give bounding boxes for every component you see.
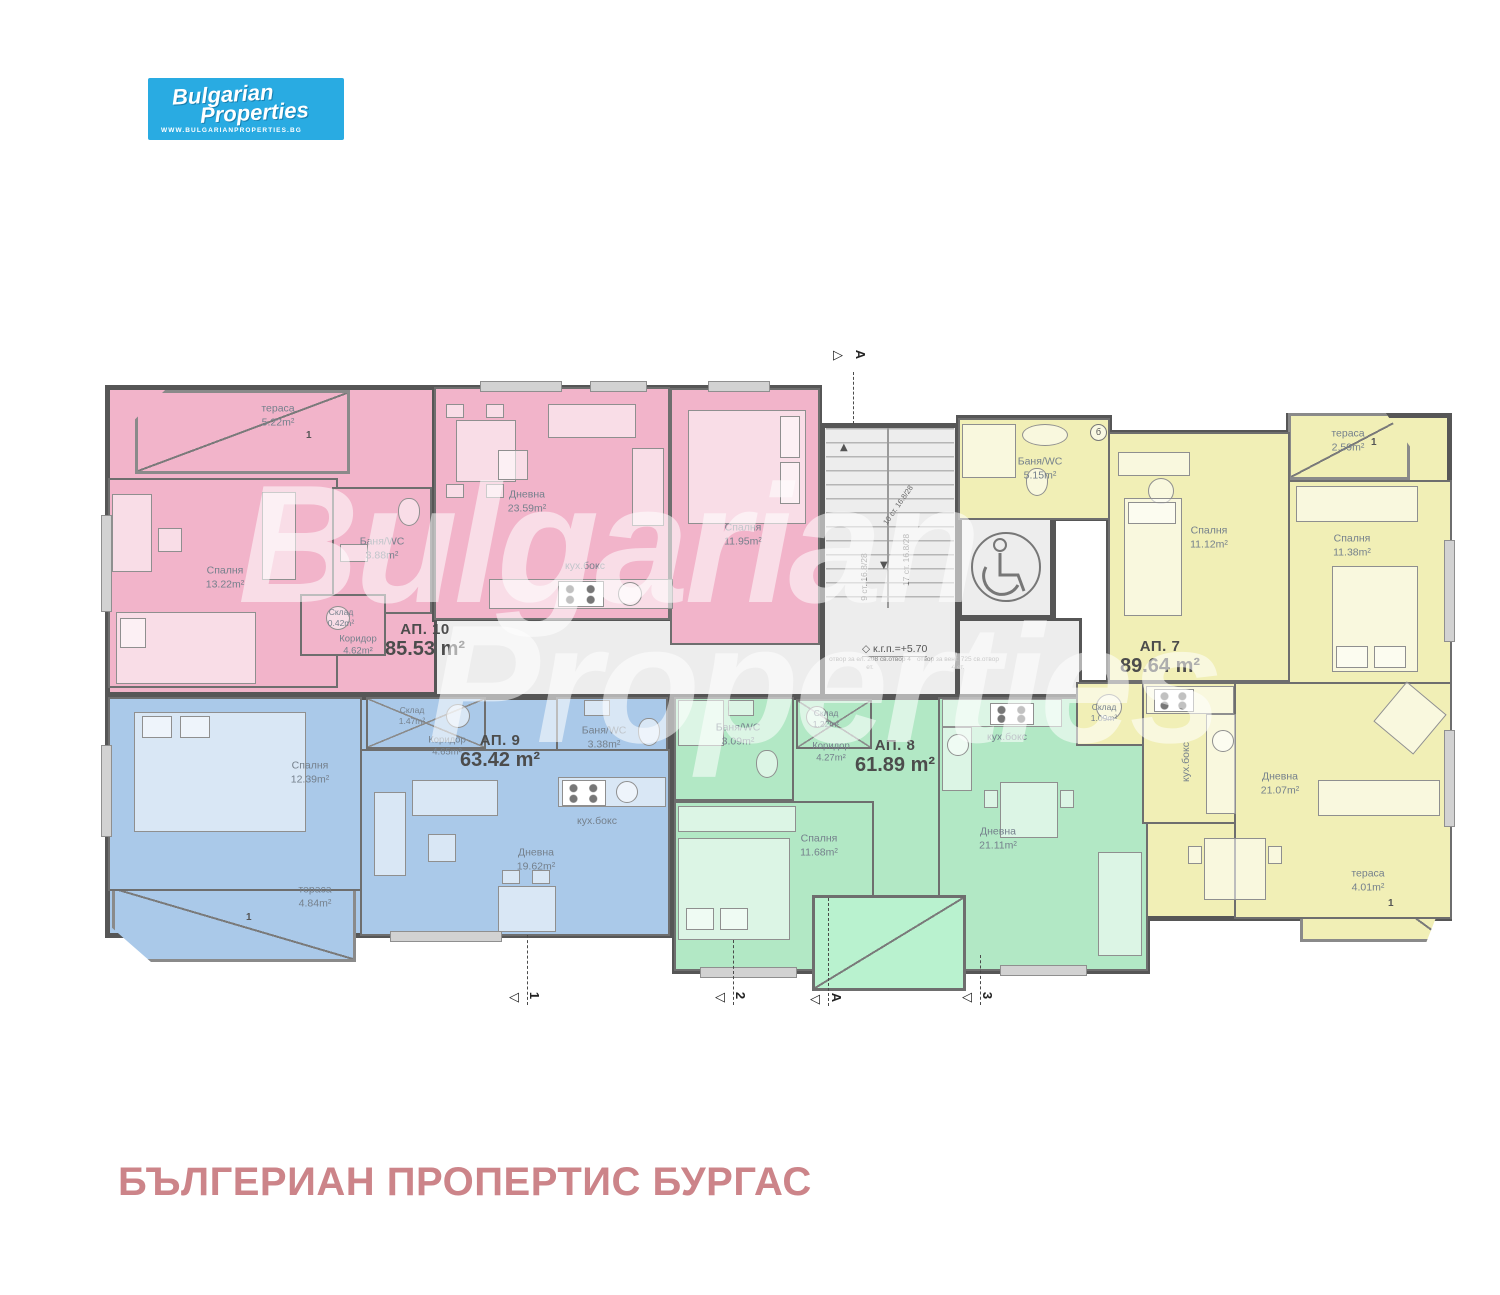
section-arrow-icon: ◁ (509, 990, 519, 1005)
window (590, 381, 647, 392)
section-line (853, 372, 854, 424)
toilet-icon (398, 498, 420, 526)
room-label-storage: Склад1.47m² (399, 705, 425, 727)
stove-icon (1154, 689, 1194, 712)
room-label-kitchen: кух.бокс (565, 560, 605, 574)
stove-icon (562, 780, 606, 806)
building-entrance-vestibule (812, 895, 966, 991)
room-label-bedroom: Спалня11.95m² (724, 521, 762, 548)
room-label-bathroom: Баня/WC3.38m² (582, 724, 627, 751)
elevator-wheelchair-icon (966, 523, 1046, 611)
wardrobe-icon (1296, 486, 1418, 522)
shaft-note: отвор за ел. 208 св.отвор 4 ет. (828, 656, 912, 672)
chair-icon (446, 484, 464, 498)
pillow-icon (780, 462, 800, 504)
stove-icon (990, 703, 1034, 725)
bath-sink-icon (728, 700, 754, 716)
kitchen-sink-icon (947, 734, 969, 756)
window (480, 381, 562, 392)
room-label-terrace: тераса2.59m² (1331, 427, 1364, 454)
room-label-bathroom: Баня/WC3.88m² (360, 535, 405, 562)
pillow-icon (1128, 502, 1176, 524)
chair-icon (984, 790, 998, 808)
toilet-icon (756, 750, 778, 778)
dining-table-icon (1204, 838, 1266, 900)
sofa-icon (1318, 780, 1440, 816)
wardrobe-icon (262, 492, 296, 580)
pillow-icon (1374, 646, 1406, 668)
window (101, 745, 112, 837)
floor-plan-page: Bulgarian Properties WWW.BULGARIANPROPER… (0, 0, 1500, 1295)
window (1444, 730, 1455, 827)
stair-flight-label: 17 ст. 16.8/28 (901, 534, 911, 586)
room-label-corridor: Коридор4.27m² (812, 741, 850, 766)
room-label-living: Дневна21.07m² (1261, 770, 1300, 797)
section-arrow-icon: ◁ (715, 990, 725, 1005)
section-line (828, 898, 829, 1006)
kitchen-counter (1206, 714, 1236, 814)
bulgarian-properties-logo: Bulgarian Properties WWW.BULGARIANPROPER… (148, 78, 344, 140)
benchmark-icon: ◇ (862, 643, 873, 655)
room-label-bedroom: Спалня11.12m² (1190, 524, 1228, 551)
shower-icon (962, 424, 1016, 478)
stair-direction-up-icon: ▲ (840, 442, 848, 453)
ap8-label: АП. 861.89 m² (855, 737, 935, 777)
sofa-icon (632, 448, 664, 526)
kitchen-sink-icon (1212, 730, 1234, 752)
chair-icon (486, 404, 504, 418)
room-label-terrace: тераса5.22m² (261, 402, 294, 429)
chair-icon (158, 528, 182, 552)
section-marker-top: А (853, 350, 868, 359)
window (1444, 540, 1455, 642)
section-marker-3: 3 (980, 992, 995, 999)
room-label-living: Дневна23.59m² (508, 488, 547, 515)
section-marker-2: 2 (733, 992, 748, 999)
room-label-kitchen: кух.бокс (987, 731, 1027, 745)
chair-icon (1268, 846, 1282, 864)
sofa-icon (374, 792, 406, 876)
chair-icon (486, 484, 504, 498)
room-label-bedroom: Спалня11.38m² (1333, 532, 1371, 559)
logo-website: WWW.BULGARIANPROPERTIES.BG (161, 127, 302, 134)
terrace-door-mark: 1 (306, 430, 312, 441)
section-marker-a: А (829, 993, 844, 1002)
room-label-kitchen: кух.бокс (1180, 742, 1194, 782)
terrace-door-mark: 1 (1388, 898, 1394, 909)
page-title: БЪЛГЕРИАН ПРОПЕРТИС БУРГАС (118, 1160, 812, 1205)
ap10-label: АП. 1085.53 m² (385, 621, 465, 661)
pillow-icon (780, 416, 800, 458)
coffee-table-icon (428, 834, 456, 862)
logo-brand-bottom: Properties (199, 97, 309, 129)
pillow-icon (180, 716, 210, 738)
room-label-kitchen: кух.бокс (577, 815, 617, 829)
room-label-bathroom: Баня/WC3.09m² (716, 721, 761, 748)
room-label-bathroom: Баня/WC5.15m² (1018, 455, 1063, 482)
room-label-storage: Склад0.42m² (328, 607, 354, 629)
room-label-corridor: Коридор4.62m² (339, 634, 377, 659)
stair-flight-label: 9 ст. 16.8/28 (859, 553, 869, 600)
bathtub-sink-icon (1022, 424, 1068, 446)
kitchen-sink-icon (618, 582, 642, 606)
kitchen-sink-icon (616, 781, 638, 803)
chair-icon (1188, 846, 1202, 864)
toilet-icon (638, 718, 660, 746)
coffee-table-icon (498, 450, 528, 480)
terrace-door-mark: 1 (1371, 437, 1377, 448)
ap10-terrace (135, 390, 350, 474)
window (708, 381, 770, 392)
pillow-icon (720, 908, 748, 930)
section-arrow-icon: ◁ (962, 990, 972, 1005)
detail-bubble: б (1090, 424, 1107, 441)
dining-table-icon (498, 886, 556, 932)
window (101, 515, 112, 612)
stair-direction-down-icon: ▼ (880, 560, 888, 571)
wardrobe-icon (678, 806, 796, 832)
pillow-icon (142, 716, 172, 738)
chair-icon (446, 404, 464, 418)
terrace-door-mark: 1 (246, 912, 252, 923)
pillow-icon (1336, 646, 1368, 668)
sofa-icon (412, 780, 498, 816)
desk-icon (112, 494, 152, 572)
washing-machine-icon (446, 704, 470, 728)
shaft-note: отвор за вент. 725 св.отвор 4 ет. (916, 656, 1000, 672)
chair-icon (1060, 790, 1074, 808)
room-label-storage: Склад1.09m² (1091, 702, 1117, 724)
stove-icon (558, 581, 604, 607)
section-arrow-icon: ◁ (810, 992, 820, 1007)
room-label-storage: Склад1.22m² (813, 708, 839, 730)
window (1000, 965, 1087, 976)
section-arrow-icon: ▷ (833, 348, 843, 363)
section-marker-1: 1 (527, 992, 542, 999)
pillow-icon (120, 618, 146, 648)
desk-icon (1118, 452, 1190, 476)
ap7-label: АП. 789.64 m² (1120, 638, 1200, 678)
sofa-icon (548, 404, 636, 438)
room-label-bedroom: Спалня13.22m² (206, 564, 245, 591)
bath-sink-icon (584, 700, 610, 716)
window (700, 967, 797, 978)
room-label-bedroom: Спалня11.68m² (800, 832, 838, 859)
window (390, 931, 502, 942)
pillow-icon (686, 908, 714, 930)
room-label-living: Дневна21.11m² (979, 825, 1017, 852)
room-label-living: Дневна19.62m² (517, 846, 556, 873)
room-label-terrace: тераса4.84m² (298, 883, 331, 910)
elevation-mark: ◇ к.г.п.=+5.70 (862, 643, 927, 657)
ap9-label: АП. 963.42 m² (460, 732, 540, 772)
room-label-terrace: тераса4.01m² (1351, 867, 1384, 894)
sofa-icon (1098, 852, 1142, 956)
room-label-bedroom: Спалня12.39m² (291, 759, 330, 786)
